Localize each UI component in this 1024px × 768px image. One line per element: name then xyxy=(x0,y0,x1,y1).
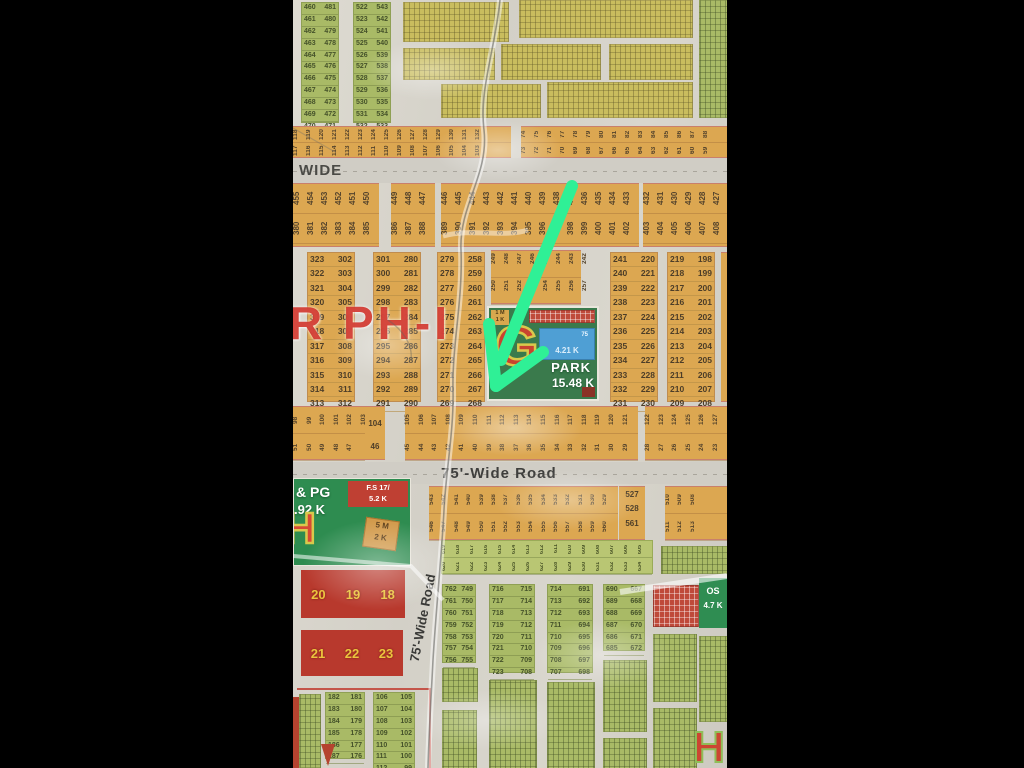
plot-band: 455454453452451450 380381382383384385 xyxy=(293,183,379,247)
plot-number-rotated: 127 xyxy=(713,407,727,433)
plot-pair-row: 219198 xyxy=(668,253,714,267)
plot-number-rotated: 257 xyxy=(582,278,595,293)
plot-number-rotated: 114 xyxy=(332,143,345,158)
plot-number-rotated: 249 xyxy=(491,251,504,266)
plot-number-rotated: 85 xyxy=(664,127,677,142)
pond-area: 4.21 K xyxy=(540,346,594,355)
plot-number-rotated: 103 xyxy=(475,143,488,158)
plot-pair-row: 314311 xyxy=(308,383,354,397)
plot-number-rotated: 255 xyxy=(556,278,569,293)
plot-number-rotated: 393 xyxy=(497,214,511,243)
plot-number-rotated: 253 xyxy=(530,278,543,293)
plot-number-rotated: 119 xyxy=(306,127,319,142)
plot-number-rotated: 435 xyxy=(595,184,609,213)
plot-number-rotated: 538 xyxy=(491,487,503,513)
plot-pair-row: 301280 xyxy=(374,253,420,267)
plot-band: 122123124125126127 282726252423 xyxy=(645,406,727,460)
block-number: 21 xyxy=(311,646,325,661)
plot-pair-row: 688669 xyxy=(604,609,644,621)
plot-pair-row: 321304 xyxy=(308,282,354,296)
plot-number-rotated: 627 xyxy=(540,558,554,574)
plot-number-rotated: 39 xyxy=(487,434,501,460)
plot-number-rotated: 98 xyxy=(293,407,307,433)
plot-number-rotated: 510 xyxy=(665,487,677,513)
plot-number-rotated: 80 xyxy=(599,127,612,142)
plot-number-rotated: 103 xyxy=(361,407,375,433)
plot-number-rotated: 30 xyxy=(609,434,623,460)
plot-number-rotated: 382 xyxy=(321,214,335,243)
plot-number-rotated: 106 xyxy=(436,143,449,158)
plot-strip xyxy=(442,668,478,702)
plot-number-rotated: 617 xyxy=(470,541,484,557)
plot-number-rotated: 530 xyxy=(590,487,602,513)
plot-pair-row: 461480 xyxy=(302,15,338,27)
plot-number-rotated: 547 xyxy=(441,514,453,540)
plot-number-rotated: 611 xyxy=(554,541,568,557)
plot-pair-row: 182181 xyxy=(326,693,364,705)
plot-column: 2191982181992172002162012152022142032132… xyxy=(667,252,715,402)
plot-number-rotated: 439 xyxy=(539,184,553,213)
plot-number-rotated: 383 xyxy=(335,214,349,243)
plot-number-rotated: 390 xyxy=(455,214,469,243)
plot-pair-row: 299282 xyxy=(374,282,420,296)
plot-number-rotated: 438 xyxy=(553,184,567,213)
plot-number-rotated: 381 xyxy=(307,214,321,243)
plot-column: 2412202402212392222382232372242362252352… xyxy=(610,252,658,402)
letterbox-right xyxy=(727,0,1024,768)
plot-number-rotated: 444 xyxy=(469,184,483,213)
plot-number-rotated: 395 xyxy=(525,214,539,243)
plot-number-rotated: 552 xyxy=(503,514,515,540)
plot-number-rotated: 622 xyxy=(470,558,484,574)
plot-number-rotated: 36 xyxy=(527,434,541,460)
map-photo: 4604814614804624794634784644774654764664… xyxy=(293,0,727,768)
plot-number-rotated: 610 xyxy=(568,541,582,557)
plot-number-rotated: 633 xyxy=(624,558,638,574)
plot-pair-row: 708697 xyxy=(548,656,592,668)
fs-tag: F.S 17/5.2 K xyxy=(348,481,408,507)
plot-number-rotated: 555 xyxy=(541,514,553,540)
plot-pair-row: 761750 xyxy=(443,597,475,609)
plot-number-rotated: 632 xyxy=(610,558,624,574)
plot-band: 4464454444434424414404394384374364354344… xyxy=(441,183,639,247)
plot-pair-row: 216201 xyxy=(668,296,714,310)
plot-pair-row: 294287 xyxy=(374,354,420,368)
plot-number-rotated: 24 xyxy=(699,434,713,460)
plot-number-rotated: 122 xyxy=(645,407,659,433)
plot-number: 527 xyxy=(619,490,645,499)
plot-number-rotated: 399 xyxy=(581,214,595,243)
plot-number-rotated: 560 xyxy=(602,514,614,540)
plot-number-rotated: 49 xyxy=(320,434,334,460)
plot-pair-row: 316309 xyxy=(308,354,354,368)
plot-number-rotated: 446 xyxy=(441,184,455,213)
sector-label: R PH-I xyxy=(293,296,451,350)
plot-pair-row: 714691 xyxy=(548,585,592,597)
plot-number-rotated: 125 xyxy=(384,127,397,142)
block-number: 22 xyxy=(345,646,359,661)
plot-pair-row: 279258 xyxy=(438,253,484,267)
plot-pair-row: 689668 xyxy=(604,597,644,609)
plot-pair-row: 531534 xyxy=(354,110,390,122)
plot-number-rotated: 252 xyxy=(517,278,530,293)
plot-sliver xyxy=(721,252,727,402)
plot-pair-row: 529536 xyxy=(354,86,390,98)
plot-pair-row: 239222 xyxy=(611,282,657,296)
plot-number-rotated: 43 xyxy=(432,434,446,460)
plot-pair-row: 277260 xyxy=(438,282,484,296)
plot-number-rotated: 406 xyxy=(685,214,699,243)
plot-number-rotated: 127 xyxy=(410,127,423,142)
plot-column: 4604814614804624794634784644774654764664… xyxy=(301,2,339,123)
plot-number-rotated: 392 xyxy=(483,214,497,243)
plot-number-rotated: 614 xyxy=(512,541,526,557)
plot-number-rotated: 128 xyxy=(423,127,436,142)
plot-number-rotated: 115 xyxy=(541,407,555,433)
plot-number-rotated: 104 xyxy=(462,143,475,158)
plot-number-rotated: 28 xyxy=(645,434,659,460)
plot-number-rotated: 108 xyxy=(410,143,423,158)
red-block-row1: 201918 xyxy=(301,570,405,618)
plot-number-rotated: 121 xyxy=(332,127,345,142)
plot-number-rotated: 512 xyxy=(677,514,689,540)
plot-number-rotated: 550 xyxy=(479,514,491,540)
plot-number-rotated: 389 xyxy=(441,214,455,243)
plot-number-rotated: 606 xyxy=(624,541,638,557)
plot-number-rotated: 61 xyxy=(677,143,690,158)
plot-number-rotated: 45 xyxy=(405,434,419,460)
plot-pair-row: 530535 xyxy=(354,98,390,110)
plot-number-rotated: 256 xyxy=(569,278,582,293)
plot-number-rotated: 102 xyxy=(347,407,361,433)
plot-number-rotated: 117 xyxy=(293,143,306,158)
plot-pair-row: 762749 xyxy=(443,585,475,597)
plot-band: 510509508 511512513 xyxy=(665,486,727,540)
plot-number-rotated: 107 xyxy=(423,143,436,158)
plot-number-rotated: 630 xyxy=(582,558,596,574)
plot-number-rotated: 605 xyxy=(638,541,652,557)
plot-pair-row: 323302 xyxy=(308,253,354,267)
plot-strip xyxy=(653,708,697,768)
plot-number-rotated: 613 xyxy=(526,541,540,557)
plot-number-rotated: 442 xyxy=(497,184,511,213)
plot-number-rotated: 620 xyxy=(442,558,456,574)
plot-number-rotated: 250 xyxy=(491,278,504,293)
plot-number-rotated: 437 xyxy=(567,184,581,213)
plot-number-rotated: 82 xyxy=(625,127,638,142)
plot-strip xyxy=(403,48,495,80)
plot-number-rotated: 64 xyxy=(638,143,651,158)
plot-pair-row: 469472 xyxy=(302,110,338,122)
plot-pair-row: 215202 xyxy=(668,311,714,325)
plot-number-rotated: 430 xyxy=(671,184,685,213)
plot-number-rotated: 65 xyxy=(625,143,638,158)
plot-number-rotated: 537 xyxy=(503,487,515,513)
plot-pair-row: 719712 xyxy=(490,621,534,633)
plot-number-rotated: 40 xyxy=(473,434,487,460)
plot-number-rotated: 629 xyxy=(568,558,582,574)
plot-number-rotated: 112 xyxy=(358,143,371,158)
plot-strip xyxy=(699,636,727,722)
plot-pair-row: 233228 xyxy=(611,369,657,383)
plot-number-rotated: 35 xyxy=(541,434,555,460)
plot-number-rotated: 38 xyxy=(500,434,514,460)
plot-number-rotated: 546 xyxy=(429,514,441,540)
plot-number-rotated: 554 xyxy=(528,514,540,540)
plot-band: 1051061071081091101111121131141151161171… xyxy=(405,406,638,460)
plot-number-rotated: 74 xyxy=(521,127,534,142)
plot-pair-row: 522543 xyxy=(354,3,390,15)
plot-number-rotated: 109 xyxy=(459,407,473,433)
plot-number-rotated: 105 xyxy=(405,407,419,433)
os-block: OS4.7 K xyxy=(699,578,727,628)
plot-number-rotated: 113 xyxy=(514,407,528,433)
pg-label-1: & PG xyxy=(296,484,330,500)
plot-number-rotated: 246 xyxy=(530,251,543,266)
plot-number-rotated: 122 xyxy=(345,127,358,142)
plot-number-rotated: 119 xyxy=(595,407,609,433)
plot-pair-row: 278259 xyxy=(438,267,484,281)
plot-pair-row: 272265 xyxy=(438,354,484,368)
plot-number-rotated: 536 xyxy=(516,487,528,513)
plot-pair-row: 524541 xyxy=(354,27,390,39)
plot-number-rotated: 124 xyxy=(672,407,686,433)
plot-number-rotated: 533 xyxy=(553,487,565,513)
plot-column: 1061051071041081031091021101011111001129… xyxy=(373,692,415,768)
plot-pair-row: 11299 xyxy=(374,764,414,768)
plot-number-rotated: 126 xyxy=(397,127,410,142)
plot-number-rotated: 131 xyxy=(462,127,475,142)
plot-column: 7146917136927126937116947106957096967086… xyxy=(547,584,593,673)
plot-pair-row: 271266 xyxy=(438,369,484,383)
plot-number: 561 xyxy=(619,519,645,528)
plot-strip xyxy=(653,634,697,702)
pg-corner-tag: 5 M2 K xyxy=(362,517,400,551)
plot-pair-row: 707698 xyxy=(548,668,592,680)
plot-strip: 6196186176166156146136126116106096086076… xyxy=(441,540,653,574)
plot-number-rotated: 26 xyxy=(672,434,686,460)
plot-number-rotated: 407 xyxy=(699,214,713,243)
plot-number-rotated: 117 xyxy=(568,407,582,433)
plot-pair-row: 315310 xyxy=(308,369,354,383)
plot-strip xyxy=(519,0,693,38)
plot-number-rotated: 543 xyxy=(429,487,441,513)
plot-number-rotated: 100 xyxy=(320,407,334,433)
plot-band: 747576777879808182838485868788 737271706… xyxy=(521,126,727,158)
plot-pair-row: 759752 xyxy=(443,621,475,633)
plot-pair-row: 322303 xyxy=(308,267,354,281)
plot-number-rotated: 540 xyxy=(466,487,478,513)
plot-number-rotated: 23 xyxy=(713,434,727,460)
plot-pair-row: 758753 xyxy=(443,633,475,645)
plot-number-rotated: 72 xyxy=(534,143,547,158)
plot-pair-row: 234227 xyxy=(611,354,657,368)
plot-number-rotated: 27 xyxy=(659,434,673,460)
park-pond: 75 4.21 K xyxy=(539,328,595,360)
park-title: PARK xyxy=(551,360,591,375)
pond-number: 75 xyxy=(581,332,588,338)
plot-number-rotated: 628 xyxy=(554,558,568,574)
plot-strip xyxy=(299,694,321,768)
plot-band: 249248247246245244243242 250251252253254… xyxy=(491,250,581,304)
plot-number-rotated: 120 xyxy=(319,127,332,142)
plot-number-rotated: 557 xyxy=(565,514,577,540)
plot-number-rotated: 111 xyxy=(487,407,501,433)
plot-number-rotated: 37 xyxy=(514,434,528,460)
plot-number-rotated: 123 xyxy=(358,127,371,142)
plot-number-rotated: 110 xyxy=(473,407,487,433)
plot-number-rotated: 440 xyxy=(525,184,539,213)
plot-pair-row: 218199 xyxy=(668,267,714,281)
plot-strip xyxy=(441,84,541,118)
plot-number-rotated: 616 xyxy=(484,541,498,557)
plot-number-rotated: 509 xyxy=(677,487,689,513)
plot-number-rotated: 403 xyxy=(643,214,657,243)
plot-pair-row: 107104 xyxy=(374,705,414,717)
plot-number-rotated: 110 xyxy=(384,143,397,158)
plot-number-rotated: 448 xyxy=(405,184,419,213)
plot-number-rotated: 73 xyxy=(521,143,534,158)
plot-number-rotated: 71 xyxy=(547,143,560,158)
plot-pair-row: 723708 xyxy=(490,668,534,680)
plot-pair-row: 183180 xyxy=(326,705,364,717)
plot-number-rotated: 449 xyxy=(391,184,405,213)
plot-pair-row: 468473 xyxy=(302,98,338,110)
block-number: 20 xyxy=(311,587,325,602)
plot-number-rotated: 542 xyxy=(441,487,453,513)
plot-pair-row: 712693 xyxy=(548,609,592,621)
plot-number-rotated: 556 xyxy=(553,514,565,540)
plot-pair-row: 293288 xyxy=(374,369,420,383)
road-label-75: 75'-Wide Road xyxy=(441,465,557,482)
plot-number-rotated: 535 xyxy=(528,487,540,513)
plot-pair-row: 235226 xyxy=(611,340,657,354)
corner-letter-h: H xyxy=(693,726,725,768)
plot-number-rotated: 607 xyxy=(610,541,624,557)
pg-letter-h: H xyxy=(293,507,316,551)
plot-number-rotated: 431 xyxy=(657,184,671,213)
plot-pair-row: 523542 xyxy=(354,15,390,27)
plot-number-rotated: 123 xyxy=(659,407,673,433)
plot-pair-row: 526539 xyxy=(354,51,390,63)
plot-number-rotated: 387 xyxy=(405,214,419,243)
plot-number-rotated: 245 xyxy=(543,251,556,266)
plot-number-rotated: 401 xyxy=(609,214,623,243)
plot-number-rotated: 31 xyxy=(595,434,609,460)
plot-number-rotated: 67 xyxy=(599,143,612,158)
block-number: 18 xyxy=(380,587,394,602)
plot-number-rotated: 69 xyxy=(573,143,586,158)
plot-pair-row: 757754 xyxy=(443,644,475,656)
plot-number-rotated: 433 xyxy=(623,184,637,213)
plot-pair-row: 460481 xyxy=(302,3,338,15)
plot-number-rotated: 78 xyxy=(573,127,586,142)
plot-number-rotated: 380 xyxy=(293,214,307,243)
plot-pair-row: 760751 xyxy=(443,609,475,621)
plot-pair-row: 710695 xyxy=(548,633,592,645)
plot-number-rotated: 428 xyxy=(699,184,713,213)
plot-number-rotated: 79 xyxy=(586,127,599,142)
plot-number-rotated: 29 xyxy=(623,434,637,460)
plot-number-rotated: 631 xyxy=(596,558,610,574)
plot-number-rotated: 51 xyxy=(293,434,307,460)
plot-number-rotated: 634 xyxy=(638,558,652,574)
plot-number-rotated: 453 xyxy=(321,184,335,213)
plot-number-rotated: 86 xyxy=(677,127,690,142)
plot-number-rotated: 455 xyxy=(293,184,307,213)
plot-strip xyxy=(501,44,601,80)
plot-pair-row: 464477 xyxy=(302,51,338,63)
plot-pair-row: 109102 xyxy=(374,729,414,741)
plot-band: 9899100101102103 5150494847 104 46 xyxy=(293,406,385,460)
plot-number-rotated: 111 xyxy=(371,143,384,158)
plot-pair-row: 716715 xyxy=(490,585,534,597)
plot-column: 7627497617507607517597527587537577547567… xyxy=(442,584,476,663)
plot-number-rotated: 105 xyxy=(449,143,462,158)
plot-pair-row: 236225 xyxy=(611,325,657,339)
plot-number-rotated: 394 xyxy=(511,214,525,243)
plot-number-rotated: 434 xyxy=(609,184,623,213)
plot-number-rotated: 445 xyxy=(455,184,469,213)
plot-number-rotated: 88 xyxy=(703,127,716,142)
plot-pair-row: 721710 xyxy=(490,644,534,656)
plot-number-rotated: 242 xyxy=(582,251,595,266)
plot-number-rotated: 609 xyxy=(582,541,596,557)
plot-number-rotated: 404 xyxy=(657,214,671,243)
plot-band: 432431430429428427 403404405406407408 xyxy=(643,183,727,247)
plot-number-rotated: 47 xyxy=(347,434,361,460)
plot-strip xyxy=(489,680,537,768)
plot-number-rotated: 118 xyxy=(293,127,306,142)
plot-number-rotated: 447 xyxy=(419,184,433,213)
plot-strip xyxy=(603,738,647,768)
plot-number-rotated: 534 xyxy=(541,487,553,513)
plot-pair-row: 527538 xyxy=(354,62,390,74)
plot-number-rotated: 116 xyxy=(555,407,569,433)
plot-number-rotated: 553 xyxy=(516,514,528,540)
plot-number-rotated: 623 xyxy=(484,558,498,574)
pg-block: & PG .92 K F.S 17/5.2 K H 5 M2 K xyxy=(293,478,411,566)
plot-number-rotated: 615 xyxy=(498,541,512,557)
plot-number-rotated: 41 xyxy=(459,434,473,460)
plot-number-rotated: 513 xyxy=(690,514,702,540)
plot-number-rotated: 118 xyxy=(582,407,596,433)
plot-number-rotated: 44 xyxy=(419,434,433,460)
plot-number: 46 xyxy=(365,442,385,451)
plot-number-rotated: 120 xyxy=(609,407,623,433)
plot-strip xyxy=(403,2,509,42)
plot-number-rotated: 436 xyxy=(581,184,595,213)
plot-number-rotated: 625 xyxy=(512,558,526,574)
plot-number-rotated: 124 xyxy=(371,127,384,142)
plot-number-rotated: 66 xyxy=(612,143,625,158)
plot-number: 528 xyxy=(619,504,645,513)
plot-pair-row: 214203 xyxy=(668,325,714,339)
plot-number-rotated: 106 xyxy=(419,407,433,433)
plot-pair-row: 240221 xyxy=(611,267,657,281)
plot-pair-row: 213204 xyxy=(668,340,714,354)
park-top-strip xyxy=(529,310,595,323)
plot-number-rotated: 402 xyxy=(623,214,637,243)
plot-pair-row: 211206 xyxy=(668,369,714,383)
plot-number-rotated: 32 xyxy=(582,434,596,460)
plot-number-rotated: 408 xyxy=(713,214,727,243)
plot-pair-row: 722709 xyxy=(490,656,534,668)
plot-number-rotated: 511 xyxy=(665,514,677,540)
plot-pair-row: 210207 xyxy=(668,383,714,397)
plot-pair-row: 528537 xyxy=(354,74,390,86)
plot-number-rotated: 251 xyxy=(504,278,517,293)
